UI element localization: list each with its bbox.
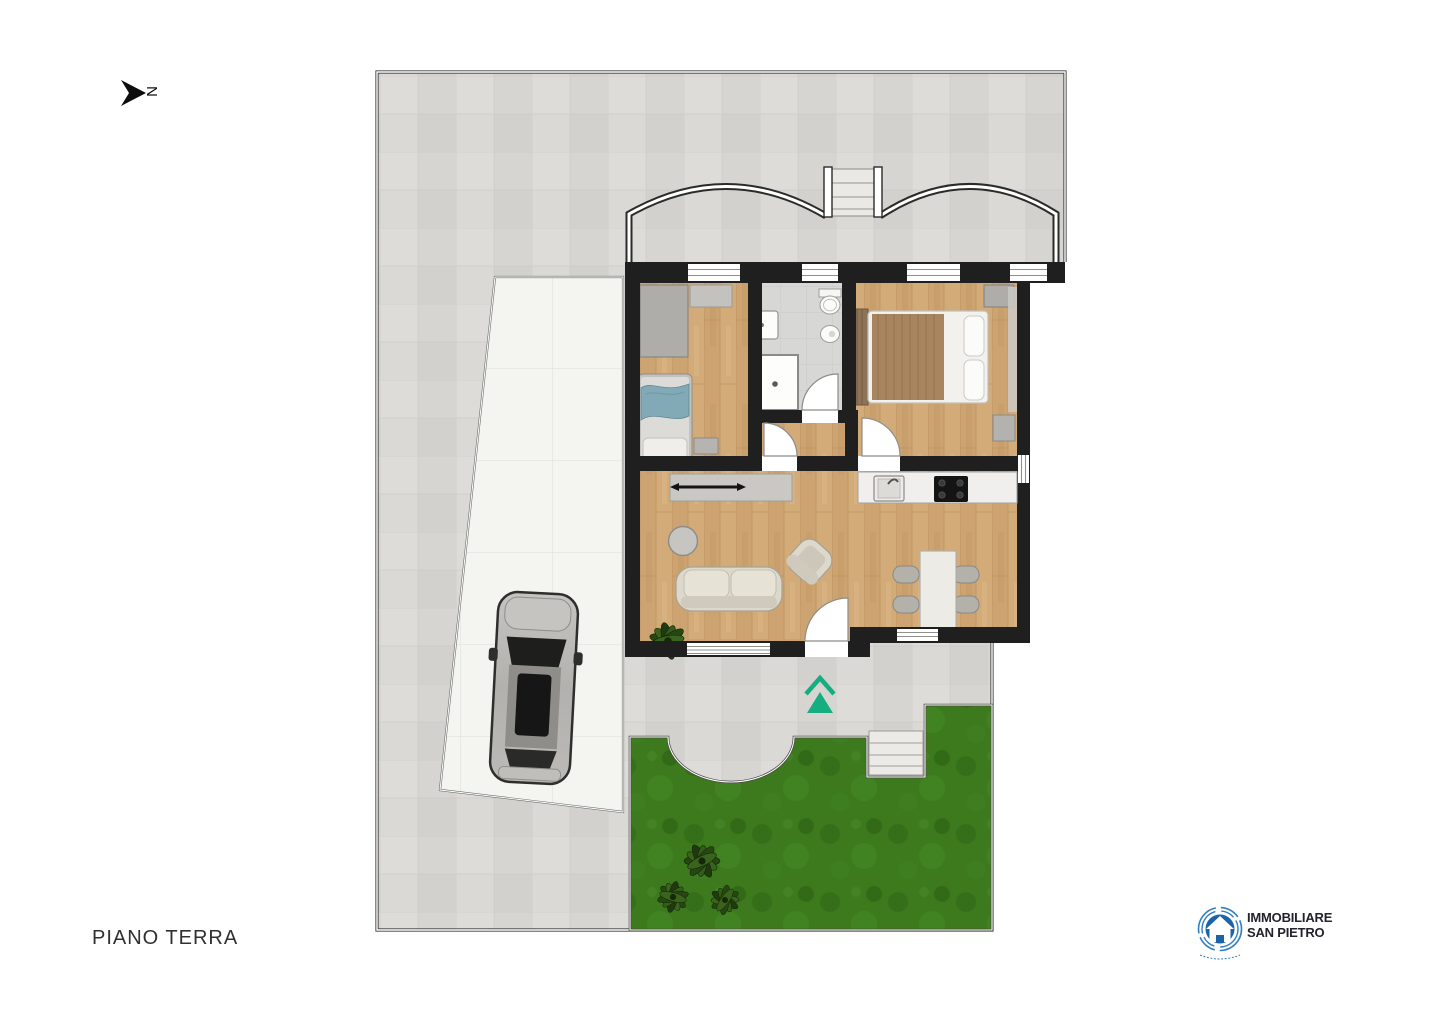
bidet — [821, 326, 840, 343]
kitchen-sink — [874, 476, 904, 501]
wall-mid-a — [640, 456, 762, 471]
dining-table — [920, 551, 956, 629]
shower — [757, 355, 798, 410]
french-window — [687, 643, 770, 655]
pillow — [964, 316, 984, 356]
sideboard — [670, 474, 792, 501]
terrace-stairs — [824, 167, 882, 217]
wall-bath-bed2 — [842, 283, 856, 410]
window — [802, 264, 838, 281]
chair — [953, 566, 979, 583]
car — [482, 591, 586, 786]
window-kitchen-side — [1018, 455, 1029, 483]
north-arrow: N — [121, 80, 160, 106]
chair — [893, 596, 919, 613]
kitchen-counter — [858, 472, 1017, 503]
window — [688, 264, 740, 281]
floor-plan-page: N PIANO TERRA IMMOBILIARE SAN PIETRO — [0, 0, 1440, 1018]
double-bed — [853, 309, 988, 405]
window-dining — [897, 629, 938, 641]
nightstand — [993, 415, 1015, 441]
wall-mid-c — [900, 456, 1017, 471]
wall-left — [625, 262, 640, 657]
logo-line1: IMMOBILIARE — [1247, 910, 1333, 925]
window — [907, 264, 960, 281]
toilet — [819, 289, 841, 314]
wardrobe — [640, 285, 688, 357]
north-label: N — [143, 86, 160, 97]
window — [1010, 264, 1047, 281]
side-table — [669, 527, 698, 556]
nightstand — [694, 438, 718, 454]
agency-logo: IMMOBILIARE SAN PIETRO — [1199, 908, 1333, 960]
chair — [953, 596, 979, 613]
floor-plan-canvas: N PIANO TERRA IMMOBILIARE SAN PIETRO — [0, 0, 1440, 1018]
cooktop — [934, 476, 968, 502]
garden-steps — [869, 731, 923, 775]
sofa — [676, 567, 782, 611]
wall-bed1-bath — [748, 283, 762, 458]
logo-emblem-icon — [1199, 908, 1242, 960]
wall-mid-b — [797, 456, 858, 471]
wall-bottom-right — [855, 627, 1030, 643]
floor-label: PIANO TERRA — [92, 927, 238, 949]
logo-line2: SAN PIETRO — [1247, 925, 1325, 940]
wall-right — [1017, 262, 1030, 643]
shelf — [690, 285, 732, 307]
north-arrow-icon — [121, 80, 146, 106]
closet-column — [1008, 287, 1017, 412]
pillow — [964, 360, 984, 400]
chair — [893, 566, 919, 583]
single-bed — [638, 374, 692, 468]
